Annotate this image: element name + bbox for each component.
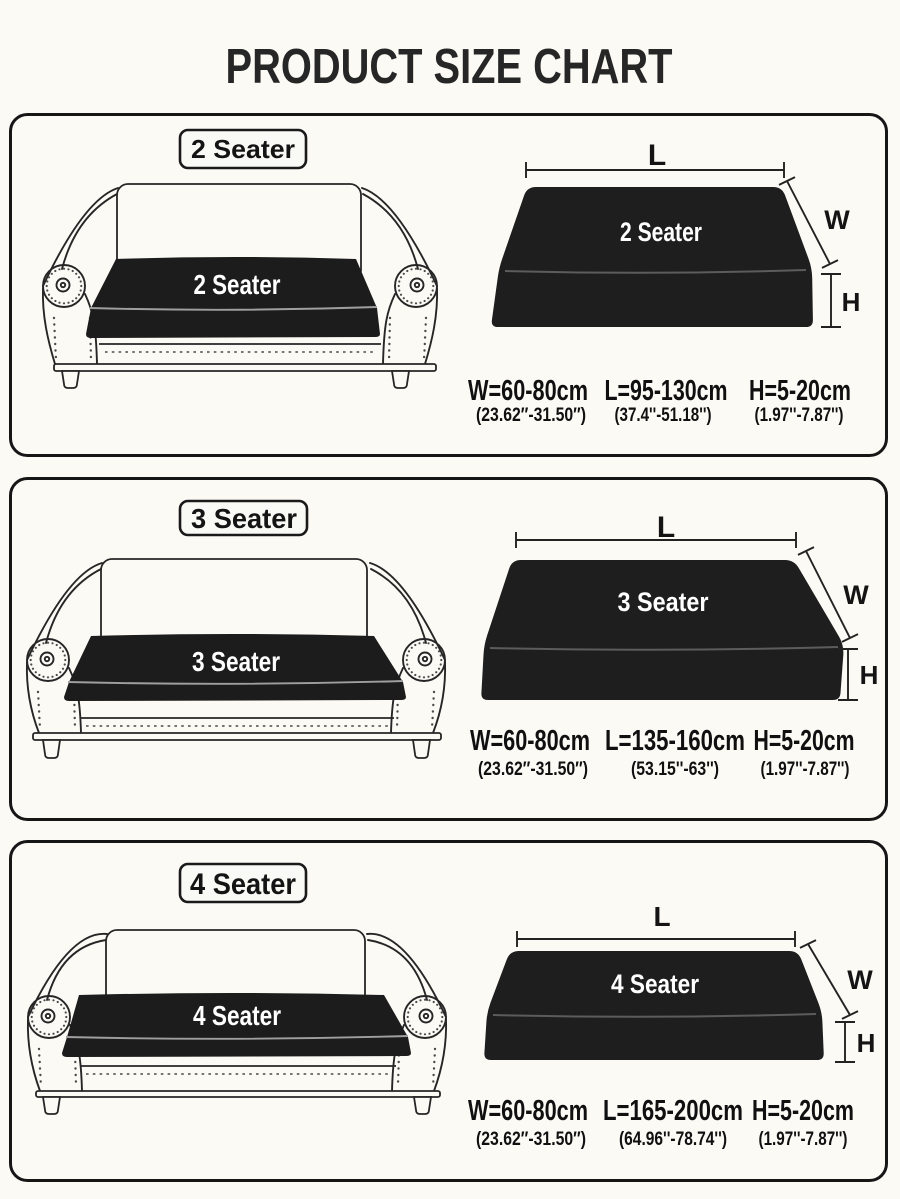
svg-text:4 Seater: 4 Seater <box>193 1000 281 1031</box>
svg-text:(1.97''-7.87''): (1.97''-7.87'') <box>761 759 850 780</box>
svg-text:L: L <box>657 511 675 544</box>
svg-text:L=135-160cm: L=135-160cm <box>605 725 745 757</box>
svg-text:L: L <box>653 901 670 932</box>
svg-text:W: W <box>824 205 850 235</box>
svg-text:L=95-130cm: L=95-130cm <box>605 375 728 407</box>
svg-text:(64.96''-78.74''): (64.96''-78.74'') <box>619 1129 727 1150</box>
svg-text:H: H <box>857 1028 876 1058</box>
svg-text:(1.97''-7.87''): (1.97''-7.87'') <box>755 405 844 426</box>
svg-text:2 Seater: 2 Seater <box>620 217 702 247</box>
svg-text:H=5-20cm: H=5-20cm <box>749 375 851 407</box>
svg-text:H: H <box>860 660 879 690</box>
svg-text:PRODUCT SIZE CHART: PRODUCT SIZE CHART <box>226 40 673 94</box>
svg-text:4 Seater: 4 Seater <box>611 969 699 999</box>
svg-text:L: L <box>648 139 666 172</box>
svg-text:(1.97''-7.87''): (1.97''-7.87'') <box>759 1129 848 1150</box>
svg-text:(37.4''-51.18''): (37.4''-51.18'') <box>615 405 712 426</box>
svg-text:(23.62″-31.50″): (23.62″-31.50″) <box>478 759 588 780</box>
svg-text:4 Seater: 4 Seater <box>190 868 296 901</box>
svg-text:3 Seater: 3 Seater <box>191 503 297 534</box>
svg-text:L=165-200cm: L=165-200cm <box>603 1095 743 1127</box>
svg-text:W: W <box>843 580 869 610</box>
svg-text:H=5-20cm: H=5-20cm <box>754 725 855 757</box>
svg-text:3 Seater: 3 Seater <box>192 646 280 677</box>
svg-text:2 Seater: 2 Seater <box>191 134 295 164</box>
svg-text:W=60-80cm: W=60-80cm <box>468 1095 588 1127</box>
svg-text:(53.15''-63''): (53.15''-63'') <box>631 759 719 780</box>
svg-text:3 Seater: 3 Seater <box>618 587 709 617</box>
svg-text:(23.62″-31.50″): (23.62″-31.50″) <box>476 1129 586 1150</box>
svg-text:H: H <box>842 287 861 317</box>
svg-text:2 Seater: 2 Seater <box>194 269 281 300</box>
svg-text:W=60-80cm: W=60-80cm <box>468 375 588 407</box>
svg-text:W=60-80cm: W=60-80cm <box>470 725 590 757</box>
svg-text:(23.62″-31.50″): (23.62″-31.50″) <box>476 405 586 426</box>
svg-text:H=5-20cm: H=5-20cm <box>752 1095 854 1127</box>
svg-text:W: W <box>847 965 873 995</box>
